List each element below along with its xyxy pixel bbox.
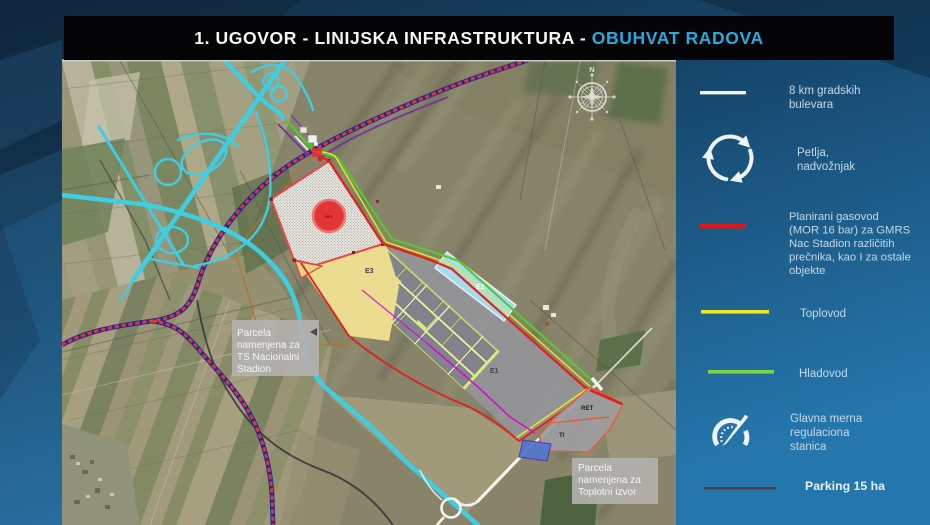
svg-text:TI: TI (559, 432, 565, 439)
svg-text:TS Nacionalni: TS Nacionalni (237, 352, 299, 363)
svg-text:8 km gradskih: 8 km gradskih (789, 85, 861, 97)
svg-text:bulevara: bulevara (789, 99, 834, 111)
svg-text:Stadion: Stadion (237, 364, 271, 375)
svg-text:Toplovod: Toplovod (800, 308, 846, 320)
svg-text:objekte: objekte (789, 265, 825, 277)
svg-text:Toplotni izvor: Toplotni izvor (578, 487, 637, 498)
svg-text:NFS: NFS (325, 215, 333, 219)
svg-text:Hladovod: Hladovod (799, 368, 848, 380)
svg-text:nadvožnjak: nadvožnjak (797, 161, 855, 173)
svg-text:N: N (589, 65, 594, 74)
svg-text:stanica: stanica (790, 441, 827, 453)
svg-text:namenjena za: namenjena za (578, 475, 641, 486)
svg-text:1. UGOVOR - LINIJSKA INFRASTRU: 1. UGOVOR - LINIJSKA INFRASTRUKTURA - OB… (194, 28, 764, 48)
svg-text:E2: E2 (476, 284, 485, 291)
svg-text:prečnika, kao I za ostale: prečnika, kao I za ostale (789, 252, 911, 264)
svg-text:RET: RET (581, 405, 594, 412)
svg-text:namenjena za: namenjena za (237, 340, 300, 351)
svg-text:Petlja,: Petlja, (797, 147, 829, 159)
svg-text:E1: E1 (490, 368, 499, 375)
svg-text:Glavna merna: Glavna merna (790, 413, 863, 425)
svg-text:Parcela: Parcela (578, 463, 612, 474)
svg-text:E3: E3 (365, 268, 374, 275)
svg-text:Parcela: Parcela (237, 328, 271, 339)
svg-text:Parking 15 ha: Parking 15 ha (805, 479, 885, 493)
svg-text:regulaciona: regulaciona (790, 427, 850, 439)
svg-text:Planirani gasovod: Planirani gasovod (789, 211, 879, 223)
svg-text:Nac Stadion različitih: Nac Stadion različitih (789, 238, 894, 250)
svg-text:(MOR 16 bar) za GMRS: (MOR 16 bar) za GMRS (789, 225, 911, 237)
